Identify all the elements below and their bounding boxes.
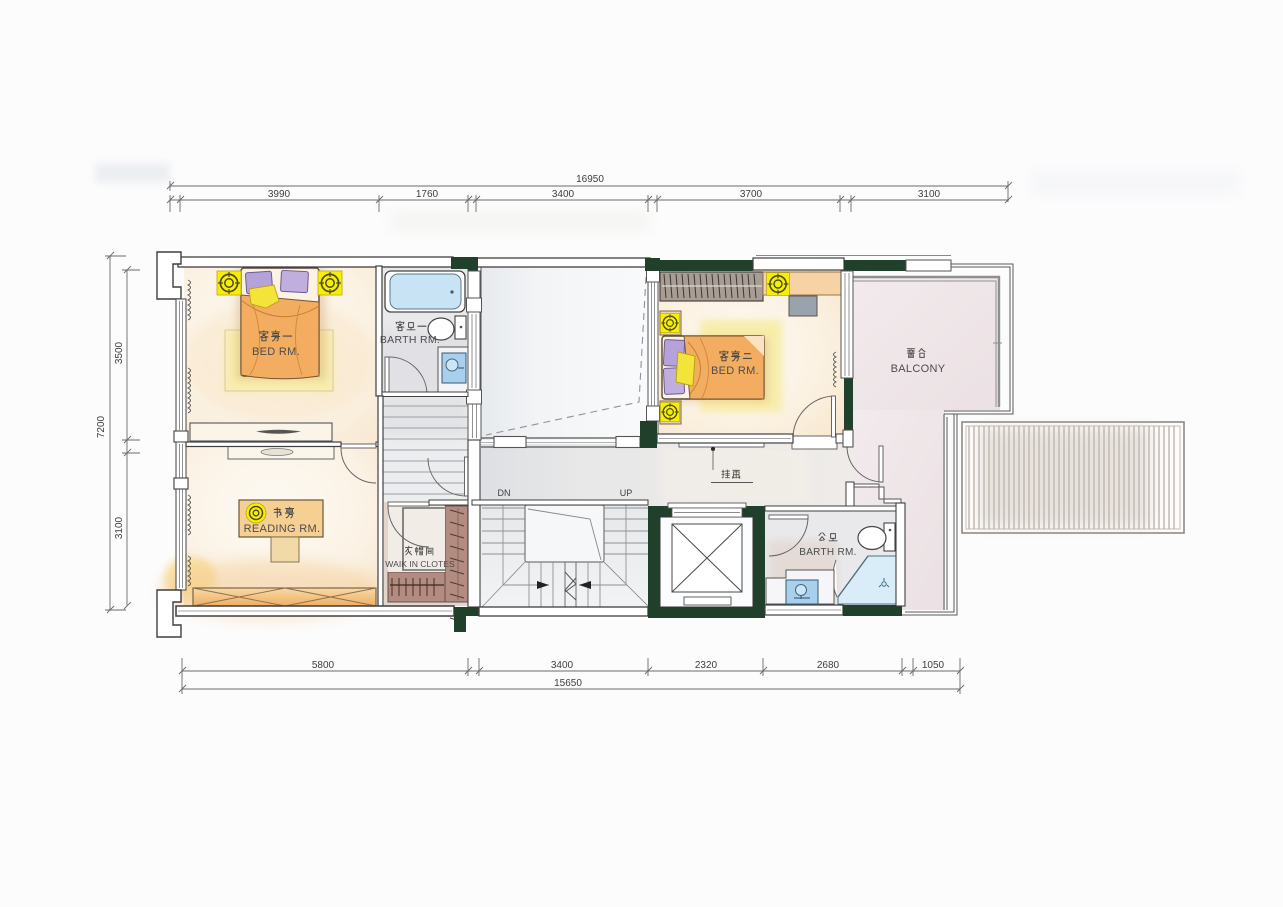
svg-text:READING RM.: READING RM. <box>244 523 321 535</box>
svg-text:3400: 3400 <box>552 189 575 200</box>
svg-text:BALCONY: BALCONY <box>891 363 946 375</box>
svg-text:BARTH RM.: BARTH RM. <box>799 547 857 558</box>
svg-text:DN: DN <box>498 488 511 498</box>
svg-text:5800: 5800 <box>312 660 335 671</box>
svg-text:7200: 7200 <box>96 415 107 438</box>
svg-text:BARTH RM.: BARTH RM. <box>380 334 440 346</box>
svg-text:WAIK IN CLOTES: WAIK IN CLOTES <box>385 559 455 569</box>
svg-text:2320: 2320 <box>695 660 718 671</box>
svg-text:1050: 1050 <box>922 660 945 671</box>
svg-text:BED RM.: BED RM. <box>711 365 759 377</box>
svg-text:1760: 1760 <box>416 189 439 200</box>
svg-text:3700: 3700 <box>740 189 763 200</box>
svg-text:UP: UP <box>620 488 633 498</box>
svg-text:3100: 3100 <box>918 189 941 200</box>
svg-text:3400: 3400 <box>551 660 574 671</box>
svg-text:3990: 3990 <box>268 189 291 200</box>
svg-text:3500: 3500 <box>114 341 125 364</box>
svg-text:16950: 16950 <box>576 174 604 185</box>
svg-text:BED RM.: BED RM. <box>252 346 300 358</box>
svg-text:15650: 15650 <box>554 678 582 689</box>
svg-text:2680: 2680 <box>817 660 840 671</box>
svg-text:3100: 3100 <box>114 516 125 539</box>
